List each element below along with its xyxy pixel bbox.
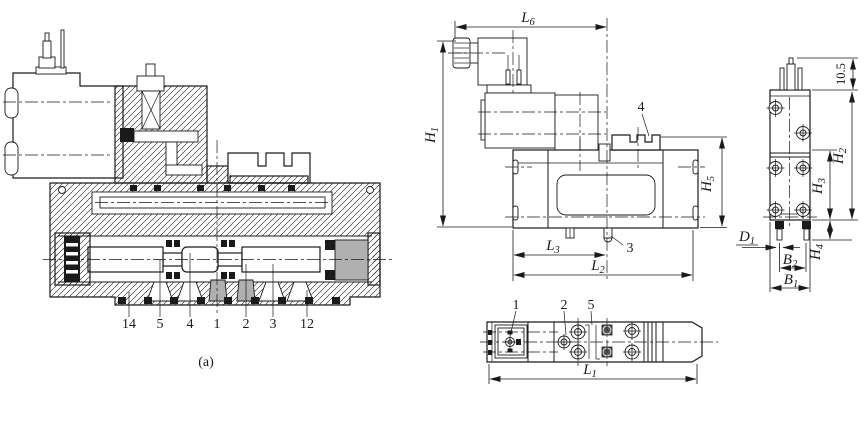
technical-drawing-solenoid-valve: 14 5 4 1 2 3 12 (a) bbox=[0, 0, 866, 444]
port-label-4: 4 bbox=[187, 317, 194, 332]
dim-H4: H4 bbox=[808, 243, 826, 261]
dim-D1: D1 bbox=[738, 229, 755, 247]
top-view: 1 2 5 L1 bbox=[480, 298, 718, 384]
part-label-4: 4 bbox=[638, 100, 645, 115]
part-label-3: 3 bbox=[627, 241, 634, 256]
dim-L2: L2 bbox=[590, 258, 605, 276]
dim-B1: B1 bbox=[784, 272, 798, 290]
solenoid-front bbox=[478, 92, 606, 155]
dim-H1: H1 bbox=[423, 127, 441, 144]
port-label-5: 5 bbox=[157, 317, 164, 332]
valve-body-front bbox=[505, 18, 705, 282]
exhaust-plug bbox=[604, 228, 612, 238]
dim-H3: H3 bbox=[810, 178, 828, 195]
valve-body-side bbox=[763, 58, 817, 240]
left-end-cap bbox=[55, 233, 90, 285]
dim-H5: H5 bbox=[699, 176, 717, 193]
cable-connector bbox=[448, 30, 531, 97]
port-label-3: 3 bbox=[270, 317, 277, 332]
body-screw-right bbox=[367, 187, 374, 194]
connector-block-top bbox=[495, 325, 527, 358]
front-view: L6 H1 H5 L3 L2 4 3 bbox=[423, 10, 727, 282]
valve-body-top bbox=[480, 318, 718, 366]
part-label-5: 5 bbox=[588, 298, 595, 313]
drawing-canvas: 14 5 4 1 2 3 12 (a) bbox=[0, 0, 866, 444]
part-label-1: 1 bbox=[513, 298, 520, 313]
exhaust-port-block bbox=[207, 153, 310, 183]
section-view: 14 5 4 1 2 3 12 (a) bbox=[3, 30, 392, 370]
part-label-2: 2 bbox=[561, 298, 568, 313]
caption-a: (a) bbox=[198, 355, 214, 370]
dim-B2: B2 bbox=[783, 252, 798, 270]
pilot-valve-block bbox=[115, 64, 207, 183]
port-label-12: 12 bbox=[300, 317, 314, 332]
manual-override-block bbox=[612, 135, 660, 150]
nameplate bbox=[557, 175, 655, 215]
port-label-2: 2 bbox=[243, 317, 250, 332]
dim-L3: L3 bbox=[545, 238, 560, 256]
dim-10-5: 10.5 bbox=[834, 63, 848, 85]
solenoid-cross-section bbox=[3, 30, 123, 178]
dim-L1: L1 bbox=[582, 362, 597, 380]
port-label-14: 14 bbox=[122, 317, 136, 332]
body-screw-left bbox=[59, 187, 66, 194]
side-view: 10.5 H2 H3 H4 D1 B2 B1 bbox=[736, 58, 858, 292]
dim-L6: L6 bbox=[520, 10, 535, 28]
port-label-1: 1 bbox=[214, 317, 221, 332]
